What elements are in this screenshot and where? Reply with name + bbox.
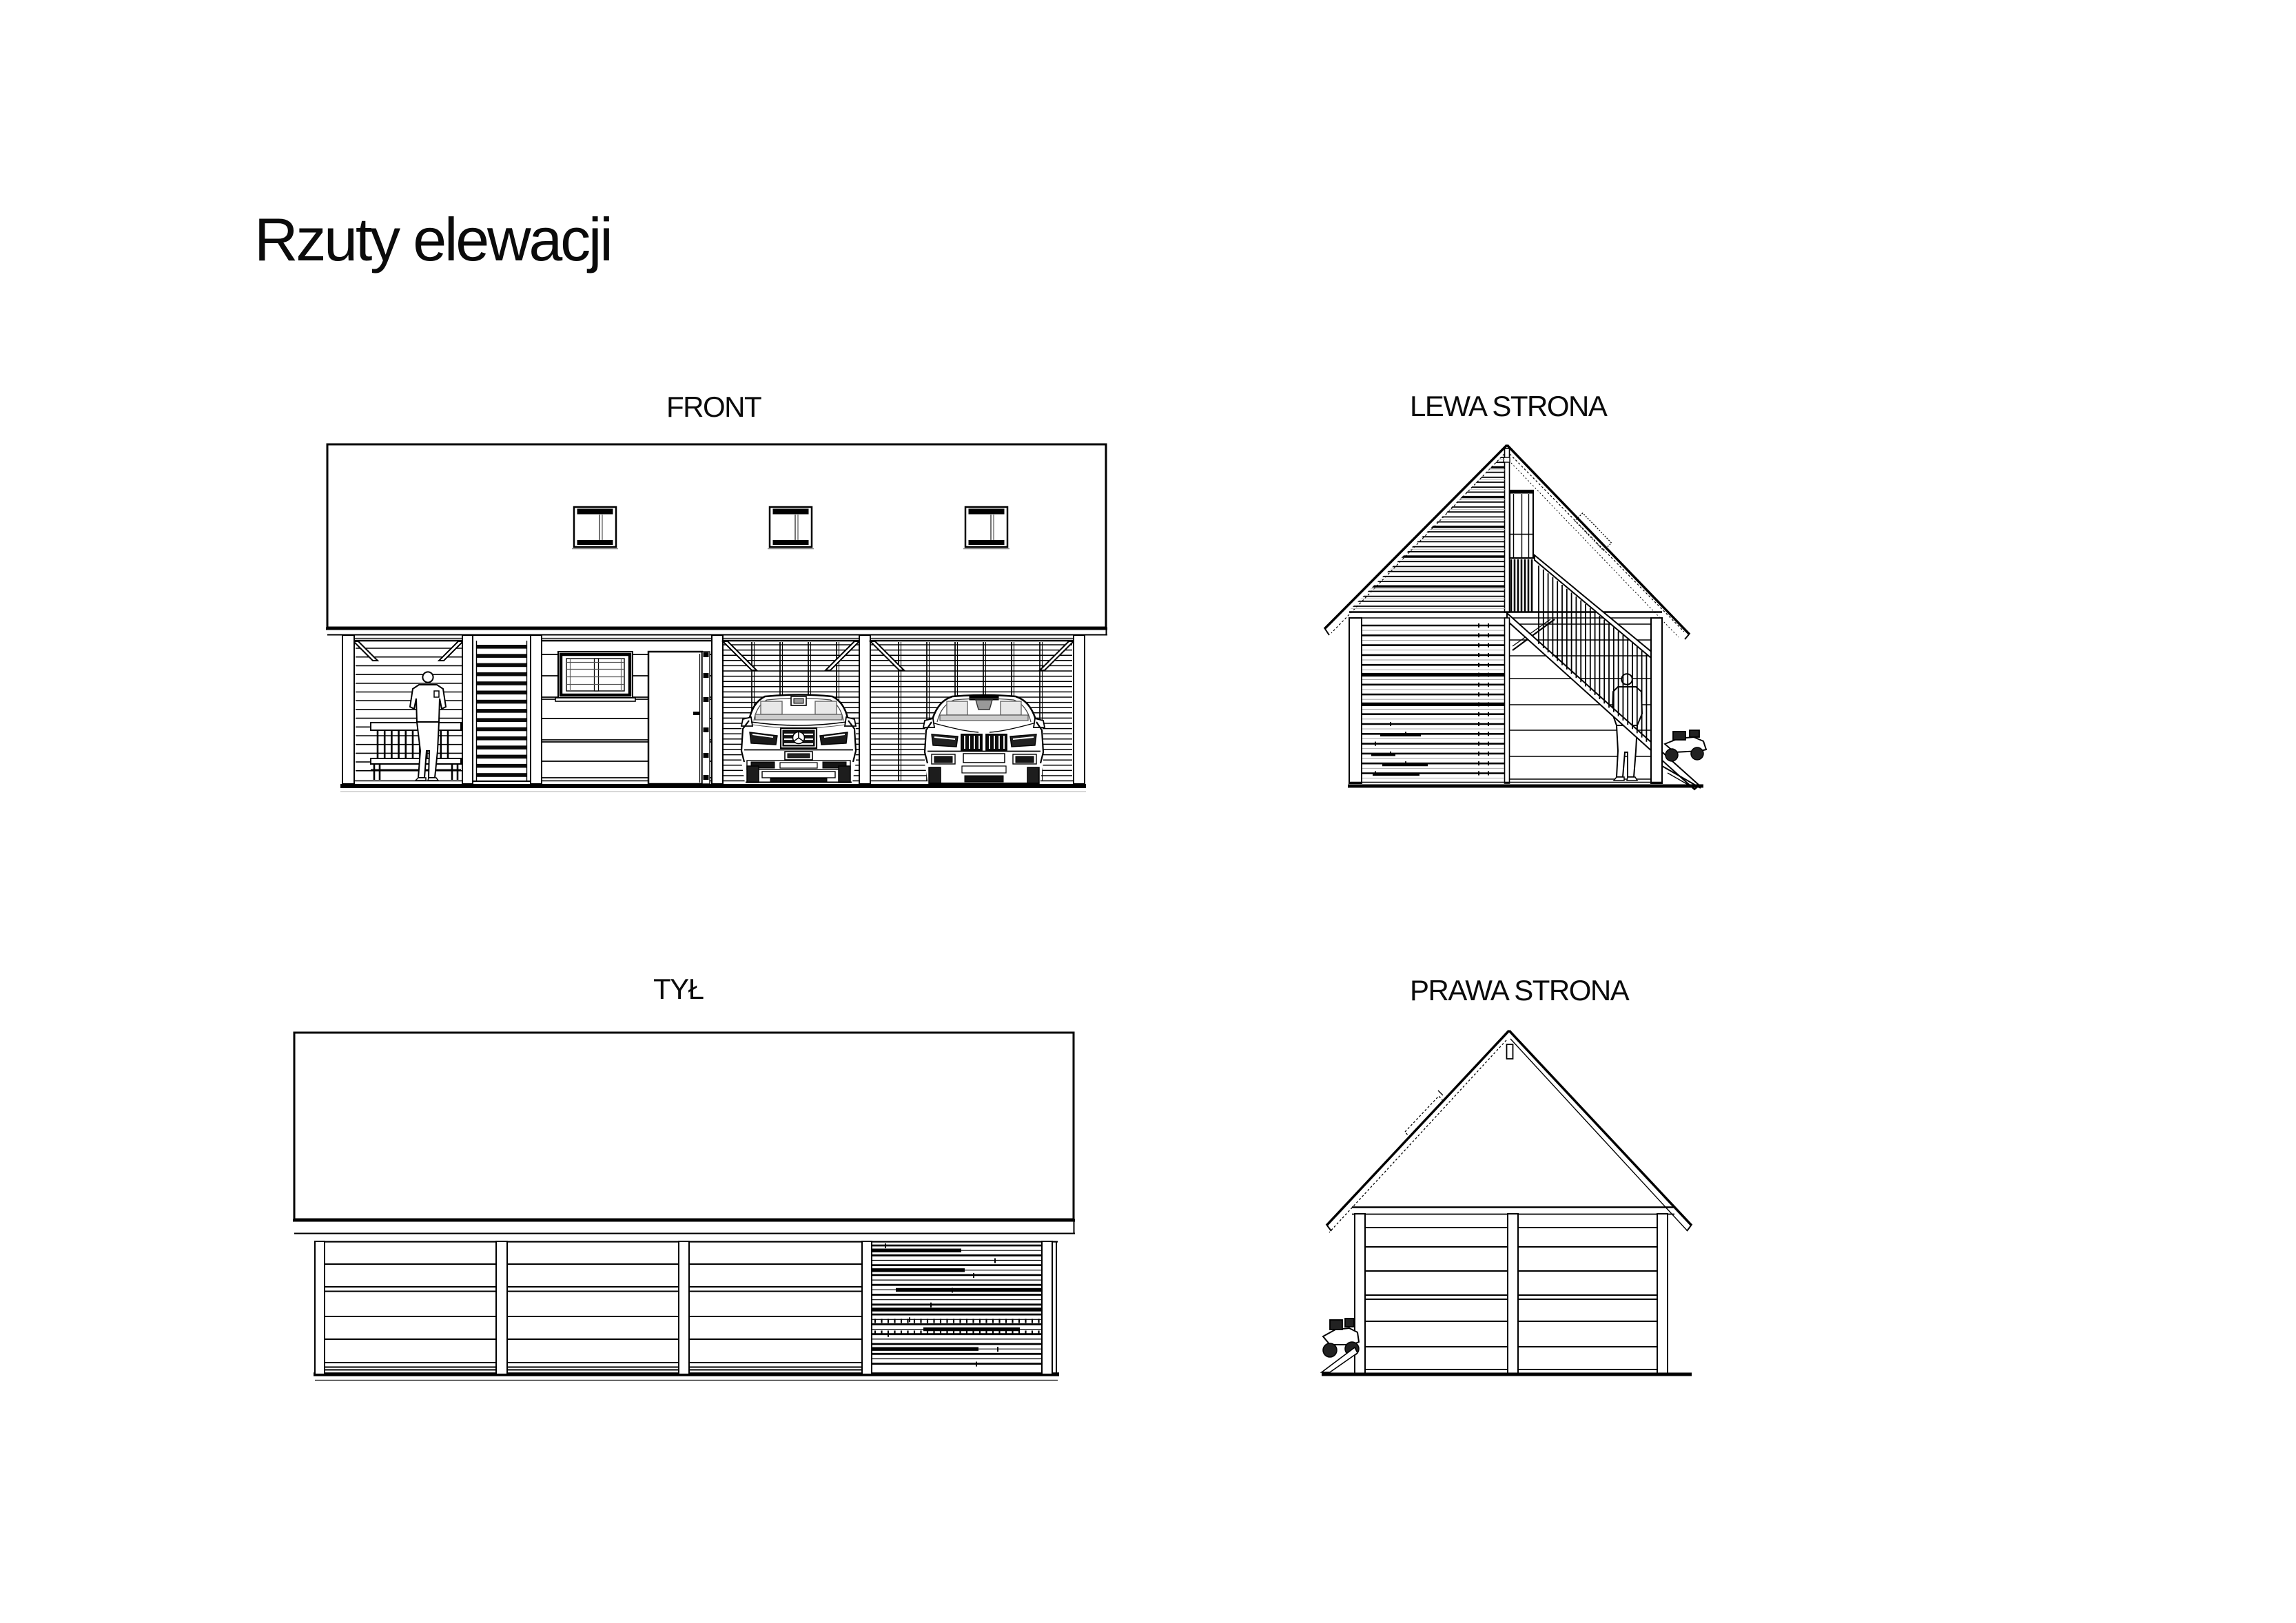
svg-text:TYŁ: TYŁ — [653, 973, 704, 1005]
svg-text:FRONT: FRONT — [666, 391, 761, 423]
svg-text:Rzuty elewacji: Rzuty elewacji — [254, 205, 611, 273]
svg-text:LEWA STRONA: LEWA STRONA — [1410, 390, 1608, 422]
svg-text:PRAWA STRONA: PRAWA STRONA — [1410, 974, 1630, 1006]
